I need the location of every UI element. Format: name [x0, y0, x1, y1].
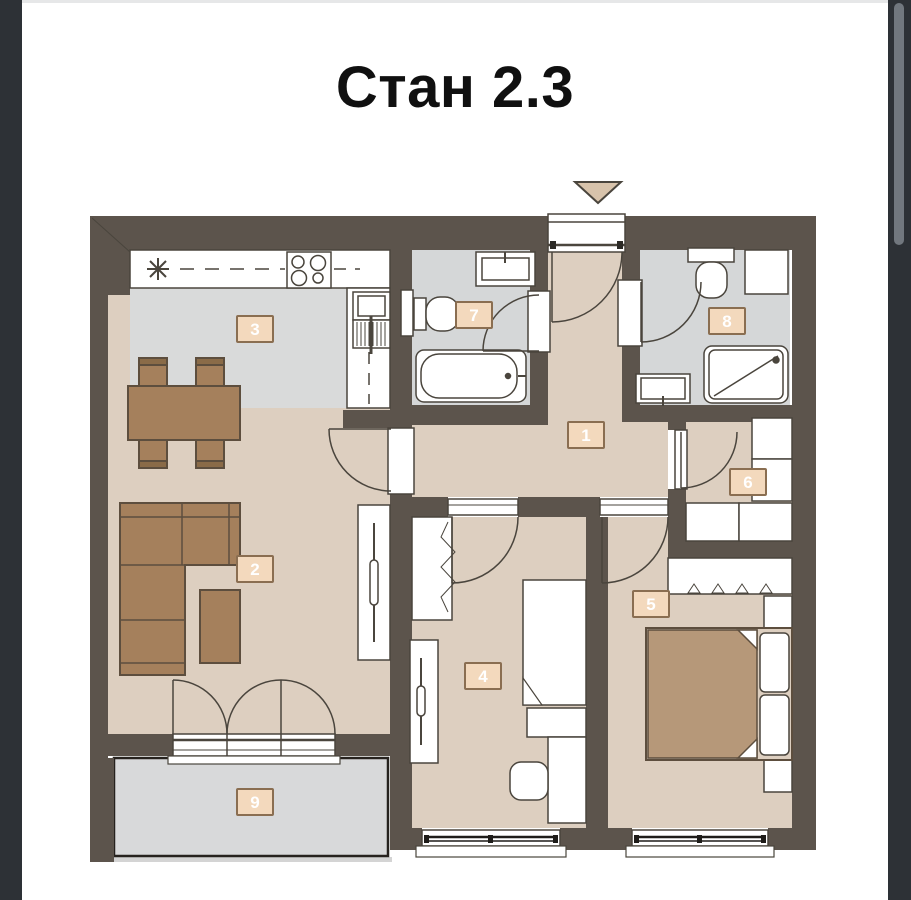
chair — [510, 762, 548, 800]
nightstand — [764, 760, 792, 792]
entrance-arrow-icon — [575, 182, 621, 203]
room-label-closet: 6 — [729, 468, 767, 496]
room-label-living-room: 2 — [236, 555, 274, 583]
cabinet — [686, 503, 739, 541]
screenshot-stage: Стан 2.3 — [0, 0, 911, 900]
bed-bench — [527, 708, 586, 737]
room-label-bathroom-7: 7 — [455, 301, 493, 329]
pillow — [760, 695, 789, 755]
wall-niche — [401, 290, 413, 336]
room-label-bedroom-4: 4 — [464, 662, 502, 690]
wardrobe — [668, 558, 792, 594]
pillow — [760, 633, 789, 692]
bedroom-4-window — [416, 830, 566, 857]
single-bed — [523, 580, 586, 705]
dining-table — [128, 386, 240, 440]
washing-machine-icon — [745, 250, 788, 294]
room-label-bedroom-5: 5 — [632, 590, 670, 618]
room-label-hallway: 1 — [567, 421, 605, 449]
sink-symbol-icon — [147, 258, 169, 280]
cabinet — [739, 503, 792, 541]
wardrobe — [412, 517, 452, 620]
floor-plan — [0, 0, 911, 900]
bedroom-5-window — [626, 830, 774, 857]
room-label-bathroom-8: 8 — [708, 307, 746, 335]
desk — [548, 737, 586, 823]
room-label-kitchen: 3 — [236, 315, 274, 343]
toilet-cistern — [414, 298, 426, 330]
nightstand — [764, 596, 792, 628]
cabinet — [752, 418, 792, 459]
coffee-table — [200, 590, 240, 663]
blanket — [648, 630, 757, 758]
terrace-shadow — [114, 857, 392, 862]
room-label-terrace: 9 — [236, 788, 274, 816]
toilet-cistern — [688, 248, 734, 262]
